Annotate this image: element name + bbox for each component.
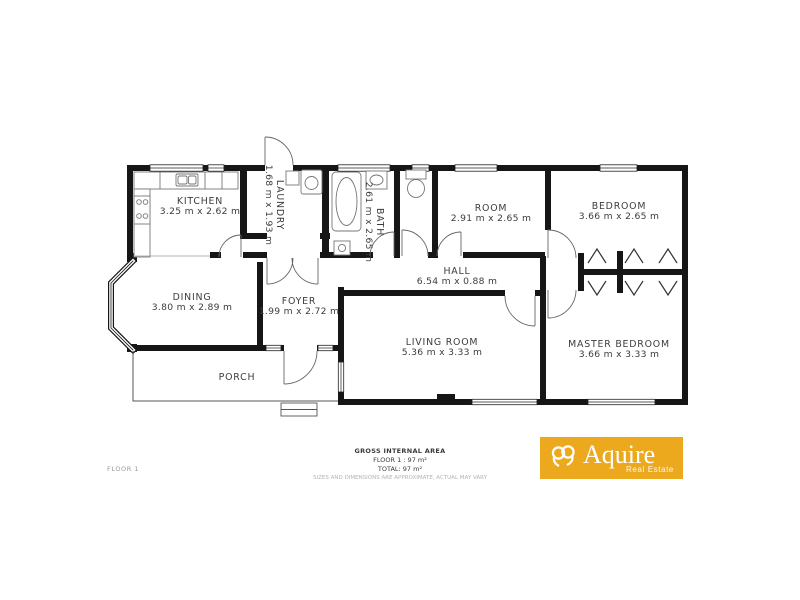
room-label-laundry: LAUNDRY 1.68 m x 1.93 m: [263, 165, 285, 245]
bedroom-dims: 3.66 m x 2.65 m: [579, 211, 659, 222]
room-label-dining: DINING 3.80 m x 2.89 m: [152, 292, 232, 313]
kitchen-sink-icon: [176, 174, 198, 186]
room-label-bath: BATH 2.61 m x 2.65 m: [363, 182, 385, 262]
laundry-name: LAUNDRY: [274, 180, 285, 230]
hall-dims: 6.54 m x 0.88 m: [417, 276, 497, 287]
room-label-hall: HALL 6.54 m x 0.88 m: [417, 266, 497, 287]
aquire-logo-icon: [548, 443, 578, 473]
area-summary-title: GROSS INTERNAL AREA: [290, 447, 510, 455]
room-label-kitchen: KITCHEN 3.25 m x 2.62 m: [160, 196, 240, 217]
laundry-sink-icon: [286, 171, 299, 185]
room-label-bedroom: BEDROOM 3.66 m x 2.65 m: [579, 201, 659, 222]
foyer-dims: 1.99 m x 2.72 m: [259, 306, 339, 317]
bath-name: BATH: [374, 208, 385, 236]
porch-name: PORCH: [219, 372, 256, 383]
kitchen-dims: 3.25 m x 2.62 m: [160, 206, 240, 217]
bath-dims: 2.61 m x 2.65 m: [363, 182, 374, 262]
master-bedroom-dims: 3.66 m x 3.33 m: [579, 349, 659, 360]
floor-tag: FLOOR 1: [107, 465, 139, 473]
floor-plan-drawing: KITCHEN 3.25 m x 2.62 m LAUNDRY 1.68 m x…: [0, 0, 800, 600]
room-label-room: ROOM 2.91 m x 2.65 m: [451, 203, 531, 224]
bathtub-icon: [332, 172, 361, 231]
area-summary-disclaimer: SIZES AND DIMENSIONS ARE APPROXIMATE, AC…: [290, 475, 510, 481]
floorplan-page: KITCHEN 3.25 m x 2.62 m LAUNDRY 1.68 m x…: [0, 0, 800, 600]
room-label-master-bedroom: MASTER BEDROOM 3.66 m x 3.33 m: [568, 339, 670, 360]
bay-window: [111, 261, 133, 350]
agency-logo: Aquire Real Estate: [540, 437, 683, 479]
area-summary: GROSS INTERNAL AREA FLOOR 1 : 97 m² TOTA…: [290, 447, 510, 481]
porch-outline: [133, 351, 338, 416]
living-room-dims: 5.36 m x 3.33 m: [402, 347, 482, 358]
area-summary-total: TOTAL: 97 m²: [290, 465, 510, 473]
washer-icon: [301, 170, 322, 194]
stove-icon: [134, 196, 150, 224]
dining-dims: 3.80 m x 2.89 m: [152, 302, 232, 313]
room-label-foyer: FOYER 1.99 m x 2.72 m: [259, 296, 339, 317]
logo-tagline-text: Real Estate: [626, 465, 674, 474]
room-label-living-room: LIVING ROOM 5.36 m x 3.33 m: [402, 337, 482, 358]
area-summary-floor: FLOOR 1 : 97 m²: [290, 456, 510, 464]
room-dims: 2.91 m x 2.65 m: [451, 213, 531, 224]
laundry-dims: 1.68 m x 1.93 m: [263, 165, 274, 245]
bath-vanity-icon: [334, 241, 350, 255]
toilet-icon: [406, 170, 426, 198]
